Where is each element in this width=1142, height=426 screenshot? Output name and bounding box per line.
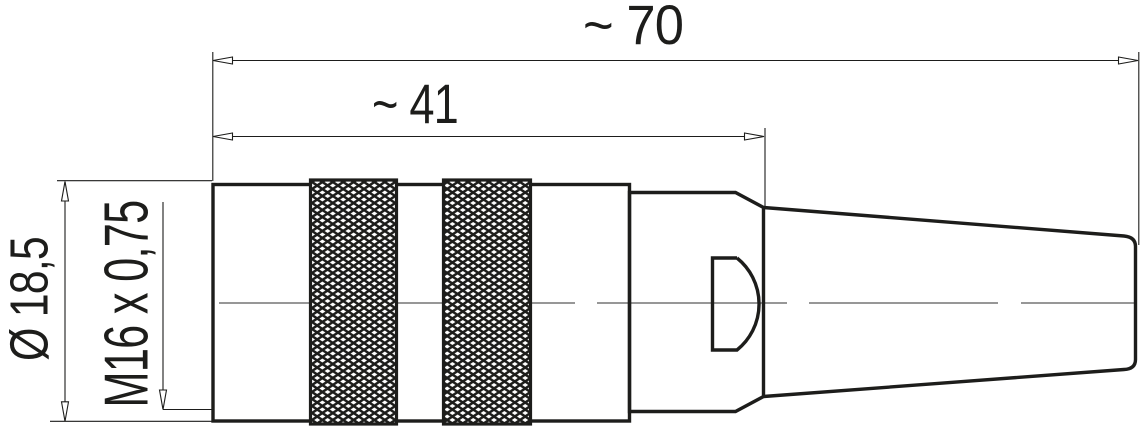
latch-window xyxy=(713,258,760,350)
arrowhead-left xyxy=(213,57,233,64)
thread-callout: M16 x 0,75 xyxy=(93,201,213,410)
dim-body-length-label: ~ 41 xyxy=(372,72,458,135)
cable-strain-relief xyxy=(764,208,1136,397)
arrowhead-right xyxy=(745,133,765,140)
knurl-band-rear xyxy=(444,180,531,424)
arrowhead-right xyxy=(1119,57,1139,64)
technical-drawing-canvas: ~ 70 ~ 41 Ø 18,5 M16 x 0,75 xyxy=(0,0,1142,426)
dim-diameter-label: Ø 18,5 xyxy=(0,237,60,361)
connector-dimension-drawing: ~ 70 ~ 41 Ø 18,5 M16 x 0,75 xyxy=(0,0,1142,426)
arrowhead-left xyxy=(213,133,233,140)
knurl-band-front xyxy=(311,180,397,424)
dim-overall-length-label: ~ 70 xyxy=(583,0,683,56)
arrowhead-bottom xyxy=(62,402,69,422)
thread-label: M16 x 0,75 xyxy=(93,201,162,408)
arrowhead-top xyxy=(62,182,69,202)
rear-cap xyxy=(630,193,764,412)
